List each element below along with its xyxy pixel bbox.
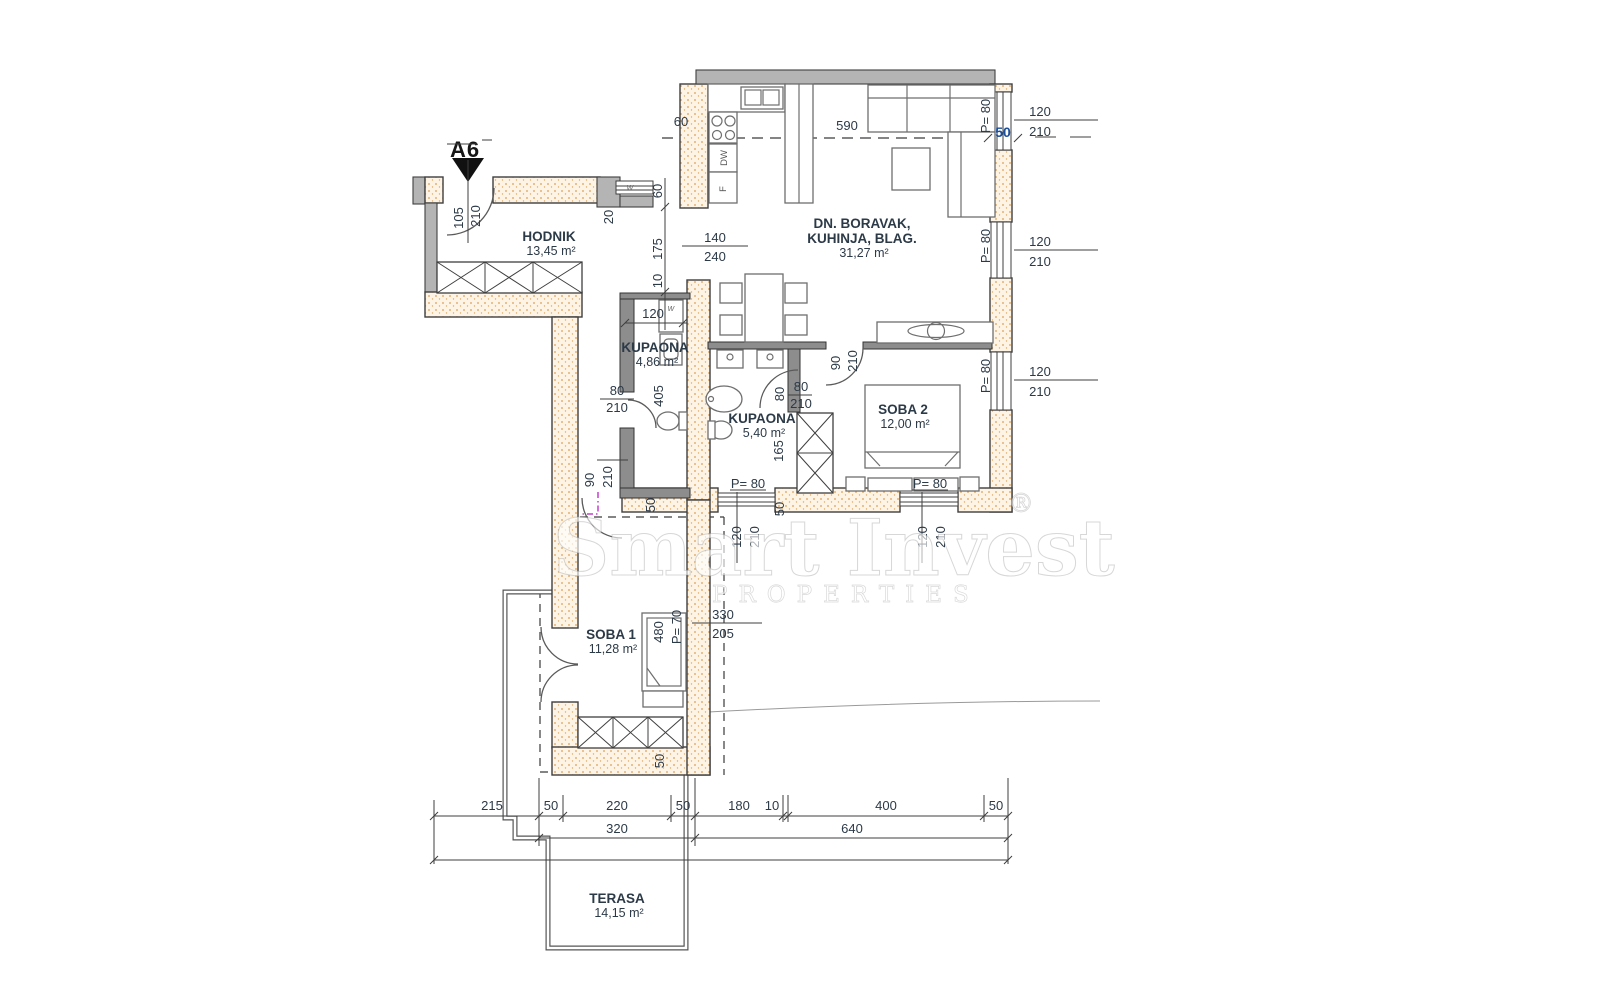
wall-bath1-south <box>620 488 690 498</box>
balcony-door-arc-2 <box>541 665 578 702</box>
dim-label: 210 <box>845 350 860 372</box>
nightstand-left <box>846 477 865 491</box>
dim-label: 60 <box>674 114 688 129</box>
bath1-toilet <box>657 412 679 430</box>
room-name: KUPAONA <box>621 340 689 355</box>
dim-label: 210 <box>606 400 628 415</box>
dim-label: 165 <box>771 440 786 462</box>
dim-label: 120 <box>1029 104 1051 119</box>
wall-soba1-south <box>552 747 710 775</box>
floor-plan-page: A6 6059050120210120210120210P= 80P= 80P=… <box>0 0 1600 1008</box>
dim-label: 215 <box>481 798 503 813</box>
dim-label: 105 <box>451 207 466 229</box>
bath2-sink-2 <box>757 350 783 368</box>
chair-3 <box>720 315 742 335</box>
bed-foot-left <box>868 478 912 491</box>
dim-label: 210 <box>600 466 615 488</box>
room-area: 31,27 m² <box>839 246 888 260</box>
dim-label: 140 <box>704 230 726 245</box>
watermark-subtext: PROPERTIES <box>712 582 980 608</box>
room-name: KUHINJA, BLAG. <box>807 231 917 246</box>
dim-label: 400 <box>875 798 897 813</box>
dim-label: 50 <box>995 124 1011 140</box>
room-area: 14,15 m² <box>594 906 643 920</box>
dim-label: 240 <box>704 249 726 264</box>
dim-label: 175 <box>650 238 665 260</box>
dim-label: 60 <box>650 184 665 198</box>
wall-bath2-north <box>708 342 826 349</box>
dim-label: P= 80 <box>978 99 993 133</box>
bath1-toilet-tank <box>679 412 687 430</box>
room-name: SOBA 2 <box>878 402 928 417</box>
dim-label: 120 <box>1029 234 1051 249</box>
room-area: 11,28 m² <box>589 642 637 656</box>
chair-2 <box>785 283 807 303</box>
chair-4 <box>785 315 807 335</box>
dim-label: 210 <box>1029 124 1051 139</box>
dim-label: P= 80 <box>731 476 765 491</box>
wall-hall-west <box>425 203 437 293</box>
wall-kitchen-west <box>680 84 708 208</box>
room-area: 5,40 m² <box>743 426 785 440</box>
sofa <box>868 85 995 132</box>
room-area: 12,00 m² <box>880 417 929 431</box>
wall-shaft-band <box>687 280 710 500</box>
window-east-2 <box>991 222 1011 278</box>
dim-label: 590 <box>836 118 858 133</box>
dim-label: 50 <box>989 798 1003 813</box>
dim-label: 220 <box>606 798 628 813</box>
dim-label: 80 <box>610 383 624 398</box>
wall-hall-south <box>425 292 582 317</box>
wall-hall-sill <box>620 196 653 207</box>
dim-label: 210 <box>1029 384 1051 399</box>
dim-label: 640 <box>841 821 863 836</box>
bath2-sink-1 <box>717 350 743 368</box>
dim-label: 20 <box>601 210 616 224</box>
dim-label: 80 <box>772 387 787 401</box>
room-name: HODNIK <box>522 229 575 244</box>
bathtub <box>706 386 742 412</box>
dim-label: F <box>718 186 729 192</box>
dim-label: 405 <box>651 385 666 407</box>
nightstand-right <box>960 477 979 491</box>
dim-label: 320 <box>606 821 628 836</box>
dim-label: 180 <box>728 798 750 813</box>
room-name: DN. BORAVAK, <box>814 216 911 231</box>
dim-label: P= 80 <box>913 476 947 491</box>
room-name: TERASA <box>589 891 645 906</box>
dim-label: 330 <box>712 607 734 622</box>
dim-label: 10 <box>650 274 665 288</box>
wall-entry-left <box>425 177 443 203</box>
watermark: Smart Invest ® PROPERTIES <box>553 489 1115 608</box>
bath2-toilet-tank <box>708 421 715 439</box>
dim-label: 50 <box>676 798 690 813</box>
sofa-chaise <box>948 132 995 217</box>
dim-label: w <box>668 303 675 313</box>
dim-label: 210 <box>790 396 812 411</box>
room-area: 4,86 m² <box>636 355 678 369</box>
dim-label: P= 80 <box>978 229 993 263</box>
soba1-bench <box>643 691 683 707</box>
witness-lines <box>434 778 1008 864</box>
dim-label: 10 <box>765 798 779 813</box>
dim-label: 50 <box>652 754 667 768</box>
floor-plan-canvas: A6 6059050120210120210120210P= 80P= 80P=… <box>0 0 1600 1008</box>
dim-label: 210 <box>468 205 483 227</box>
wall-bath1-north <box>620 293 690 299</box>
watermark-registered-icon: ® <box>1008 489 1034 519</box>
wall-living-north <box>696 70 995 84</box>
balcony-door-arc-1 <box>541 627 578 664</box>
wall-bath1-west-b <box>620 428 634 490</box>
dim-label: 90 <box>828 356 843 370</box>
dim-label: 210 <box>1029 254 1051 269</box>
dim-label: 50 <box>544 798 558 813</box>
room-name: KUPAONA <box>728 411 796 426</box>
wall-neighbor-stub <box>413 177 425 204</box>
dim-label: 205 <box>712 626 734 641</box>
dim-label: DW <box>719 150 730 166</box>
terrain-line <box>690 701 1100 713</box>
east-window-leaders <box>1014 120 1098 380</box>
coffee-table <box>892 148 930 190</box>
window-east-3 <box>991 352 1011 410</box>
wall-hall-north <box>493 177 600 203</box>
wall-soba1-sw <box>552 702 578 748</box>
dim-label: w <box>627 182 634 192</box>
dim-label: 90 <box>582 473 597 487</box>
dim-label: 80 <box>794 379 808 394</box>
dim-label: 480 <box>651 621 666 643</box>
dining-table <box>745 274 783 342</box>
dim-label: 120 <box>642 306 664 321</box>
hall-window <box>616 181 653 194</box>
dim-label: P= 70 <box>669 610 684 644</box>
room-name: SOBA 1 <box>586 627 636 642</box>
chair-1 <box>720 283 742 303</box>
dim-label: 120 <box>1029 364 1051 379</box>
room-area: 13,45 m² <box>526 244 575 258</box>
dim-label: P= 80 <box>978 359 993 393</box>
